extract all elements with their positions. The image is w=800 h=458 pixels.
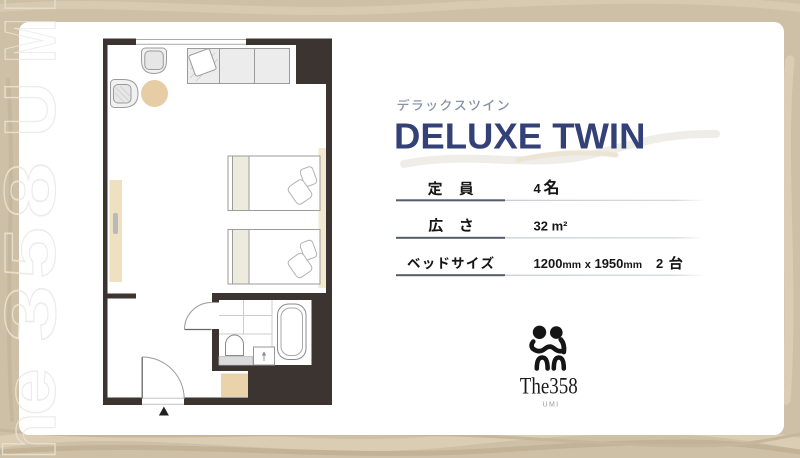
svg-text:4: 4 bbox=[534, 181, 542, 196]
svg-text:32 m²: 32 m² bbox=[534, 219, 569, 234]
svg-text:1200mm x 1950mm: 1200mm x 1950mm bbox=[534, 256, 643, 271]
svg-text:DELUXE TWIN: DELUXE TWIN bbox=[394, 116, 645, 157]
svg-text:The358: The358 bbox=[520, 374, 578, 400]
svg-text:2: 2 bbox=[656, 256, 663, 271]
svg-text:UMI: UMI bbox=[542, 402, 559, 409]
